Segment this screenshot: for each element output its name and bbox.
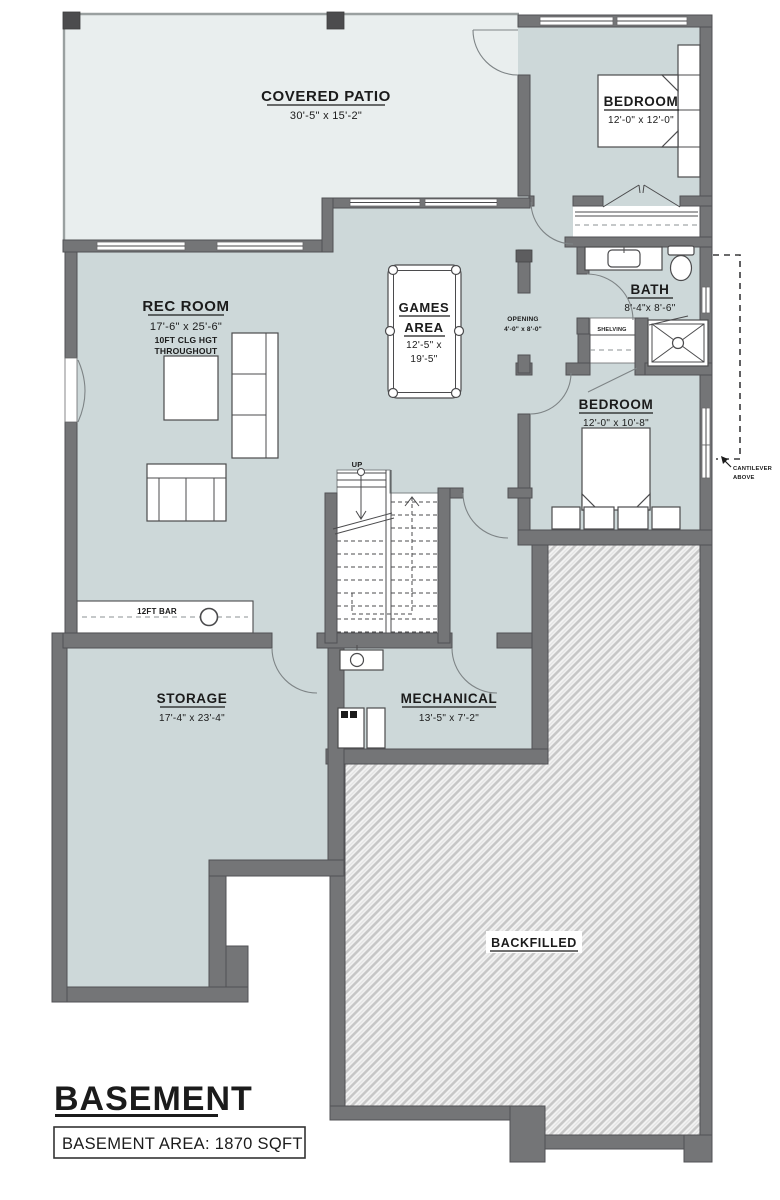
window: [350, 199, 420, 206]
shelving-closet: [590, 318, 635, 363]
window: [702, 445, 710, 478]
label-cantilever2: ABOVE: [733, 475, 755, 481]
coffee-table: [164, 356, 218, 420]
label-games1: GAMES: [399, 300, 450, 315]
label-bedroom2-dims: 12'-0" x 10'-8": [583, 418, 649, 429]
title-underline: [55, 1114, 218, 1117]
loveseat: [147, 464, 226, 521]
label-covered-patio-dims: 30'-5" x 15'-2": [290, 110, 362, 122]
floor-plan-page: COVERED PATIO 30'-5" x 15'-2" BEDROOM 12…: [0, 0, 780, 1200]
label-bar: 12FT BAR: [137, 607, 177, 616]
area-label: BASEMENT AREA: 1870 SQFT: [62, 1135, 303, 1153]
label-mechanical: MECHANICAL: [401, 691, 498, 706]
patio-post: [327, 12, 344, 29]
label-games-dims1: 12'-5" x: [406, 340, 442, 351]
label-rec-room: REC ROOM: [142, 298, 229, 315]
shower: [648, 316, 708, 366]
window: [702, 287, 710, 313]
label-rec-room-dims: 17'-6" x 25'-6": [150, 321, 222, 333]
label-games2: AREA: [404, 320, 443, 335]
sectional-sofa: [232, 333, 278, 458]
title-block: BASEMENT BASEMENT AREA: 1870 SQFT: [54, 1080, 305, 1158]
label-games-dims2: 19'-5": [410, 354, 437, 365]
toilet: [668, 246, 694, 281]
window: [425, 199, 497, 206]
label-mechanical-dims: 13'-5" x 7'-2": [419, 713, 479, 724]
floor-plan-drawing: COVERED PATIO 30'-5" x 15'-2" BEDROOM 12…: [0, 0, 780, 1200]
window: [217, 242, 303, 250]
label-cantilever1: CANTILEVER: [733, 466, 773, 472]
label-storage: STORAGE: [157, 691, 228, 706]
label-bedroom2: BEDROOM: [579, 397, 654, 412]
label-shelving: SHELVING: [597, 327, 626, 333]
label-opening2: 4'-0" x 8'-0": [504, 326, 542, 333]
cantilever-outline: [713, 255, 740, 467]
label-covered-patio: COVERED PATIO: [261, 88, 391, 105]
window: [97, 242, 185, 250]
rec-room-floor: [65, 208, 532, 648]
label-rec-room-note2: THROUGHOUT: [155, 346, 219, 356]
label-bath-dims: 8'-4"x 8'-6": [624, 303, 675, 314]
label-up: UP: [352, 460, 363, 469]
bar-sink: [201, 609, 218, 626]
label-storage-dims: 17'-4" x 23'-4": [159, 713, 225, 724]
plan-title: BASEMENT: [54, 1080, 253, 1118]
label-rec-room-note1: 10FT CLG HGT: [155, 335, 218, 345]
vanity-sink: [585, 247, 662, 270]
patio-post: [63, 12, 80, 29]
window: [702, 408, 710, 445]
label-opening1: OPENING: [507, 316, 538, 323]
closet-interior: [573, 206, 700, 237]
window: [617, 17, 687, 25]
stair-up-start: [358, 469, 365, 476]
label-bedroom1: BEDROOM: [604, 94, 679, 109]
label-backfilled: BACKFILLED: [491, 936, 577, 950]
storage-floor: [52, 633, 345, 1002]
window: [540, 17, 613, 25]
label-bath: BATH: [631, 282, 670, 297]
label-bedroom1-dims: 12'-0" x 12'-0": [608, 115, 674, 126]
